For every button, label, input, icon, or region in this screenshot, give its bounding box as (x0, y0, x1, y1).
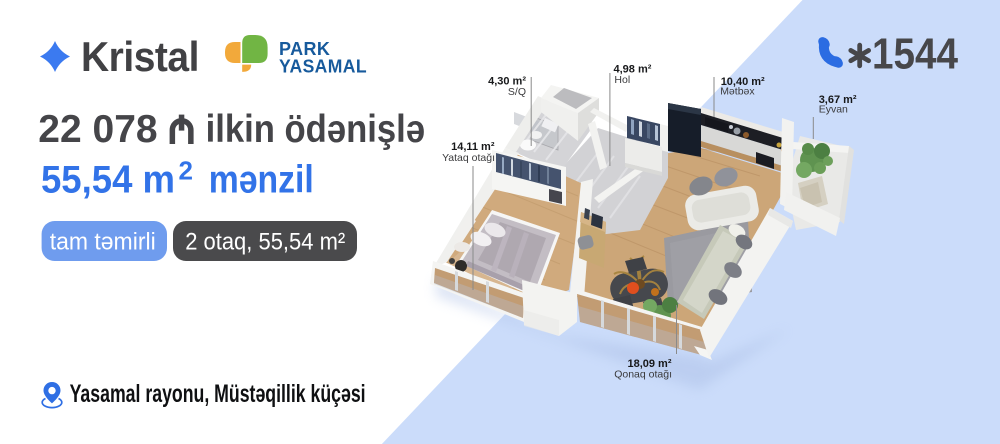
svg-text:Qonaq otağı: Qonaq otağı (614, 369, 672, 381)
svg-text:2: 2 (179, 156, 193, 186)
svg-text:Yasamal rayonu, Müstəqillik kü: Yasamal rayonu, Müstəqillik küçəsi (70, 380, 366, 408)
svg-text:Yataq otağı: Yataq otağı (442, 152, 495, 164)
svg-text:1544: 1544 (872, 30, 958, 79)
svg-text:mənzil: mənzil (209, 159, 314, 202)
svg-text:Kristal: Kristal (81, 33, 199, 80)
svg-text:55,54 m: 55,54 m (41, 159, 175, 202)
svg-text:YASAMAL: YASAMAL (279, 57, 367, 77)
svg-text:Eyvan: Eyvan (819, 103, 848, 115)
svg-text:Mətbəx: Mətbəx (720, 85, 755, 97)
svg-text:2 otaq, 55,54 m²: 2 otaq, 55,54 m² (185, 229, 345, 256)
svg-text:tam təmirli: tam təmirli (50, 229, 156, 256)
svg-text:22 078: 22 078 (38, 108, 157, 151)
svg-text:Hol: Hol (614, 74, 630, 86)
svg-text:ilkin ödənişlə: ilkin ödənişlə (206, 108, 425, 151)
svg-text:S/Q: S/Q (508, 86, 526, 98)
